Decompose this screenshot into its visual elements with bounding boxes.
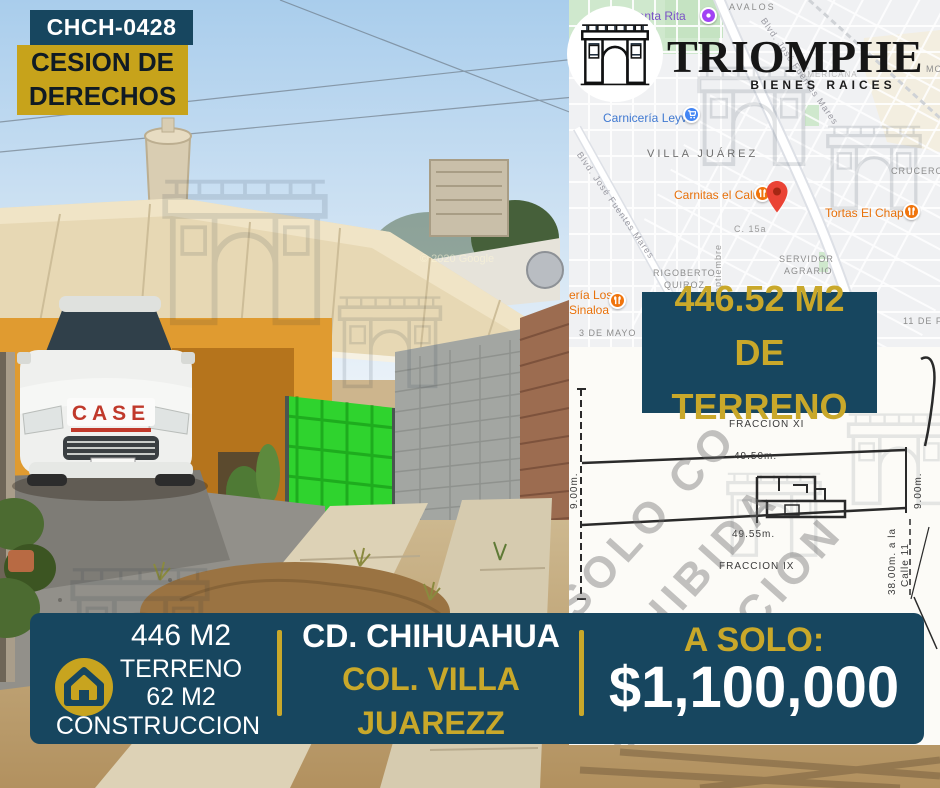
brand-tagline: BIENES RAICES xyxy=(733,78,913,92)
land-area-line1: 446.52 M2 xyxy=(642,272,877,326)
footer-bar: 446 M2 TERRENO 62 M2 CONSTRUCCION CD. CH… xyxy=(30,613,924,744)
photo-credit: © 2020 Google xyxy=(420,253,494,265)
brand-name: TRIOMPHE xyxy=(667,30,913,83)
map-label: Sinaloa xyxy=(569,303,609,317)
sinaloa-poi-food-icon xyxy=(609,292,626,309)
price-value: $1,100,000 xyxy=(584,659,924,717)
colonia-line2: JUAREZZ xyxy=(280,707,582,739)
plan-width-right: 9.00m. xyxy=(913,472,924,509)
arc-de-triomphe-icon xyxy=(567,6,663,102)
listing-type-badge: CESION DE DERECHOS xyxy=(17,45,188,115)
property-location-pin xyxy=(765,180,789,214)
property-id-badge: CHCH-0428 xyxy=(30,10,193,45)
plan-width-left: 9.00m. xyxy=(569,472,580,509)
price-label: A SOLO: xyxy=(584,623,924,657)
house-icon xyxy=(55,658,113,716)
map-label: VILLA JUÁREZ xyxy=(647,148,758,160)
map-label: 11 DE FE xyxy=(903,316,940,326)
listing-type-line1: CESION DE xyxy=(17,46,188,80)
map-label: Tortas El Chapo xyxy=(825,206,910,220)
map-label: CRUCERO xyxy=(891,166,940,176)
land-value: 446 M2 xyxy=(115,621,247,651)
tortas-el-chapo-poi-food-icon xyxy=(903,203,920,220)
map-label: SERVIDOR xyxy=(779,254,834,264)
land-area-line2: DE TERRENO xyxy=(642,326,877,434)
plan-street-note-2: Calle 11 xyxy=(900,543,911,587)
map-label: 3 DE MAYO xyxy=(579,328,636,338)
land-label: TERRENO xyxy=(115,657,247,682)
real-estate-flyer: CASE © 2020 Google xyxy=(0,0,940,788)
plan-street-note-1: 38.00m. a la xyxy=(887,528,898,595)
construction-value: 62 M2 xyxy=(115,685,247,710)
construction-label: CONSTRUCCION xyxy=(48,714,268,739)
map-label: C. 15a xyxy=(734,224,767,234)
map-label: Carnitas el Calu xyxy=(674,188,759,202)
brand-logo: TRIOMPHE BIENES RAICES xyxy=(565,4,937,110)
land-area-badge: 446.52 M2 DE TERRENO xyxy=(642,292,877,413)
city: CD. CHIHUAHUA xyxy=(280,620,582,652)
map-label: Carnicería Leyva xyxy=(603,111,694,125)
listing-type-line2: DERECHOS xyxy=(17,80,188,114)
map-label: ería Los xyxy=(569,288,612,302)
colonia-line1: COL. VILLA xyxy=(280,663,582,695)
car-hood-text: CASE xyxy=(72,402,150,425)
